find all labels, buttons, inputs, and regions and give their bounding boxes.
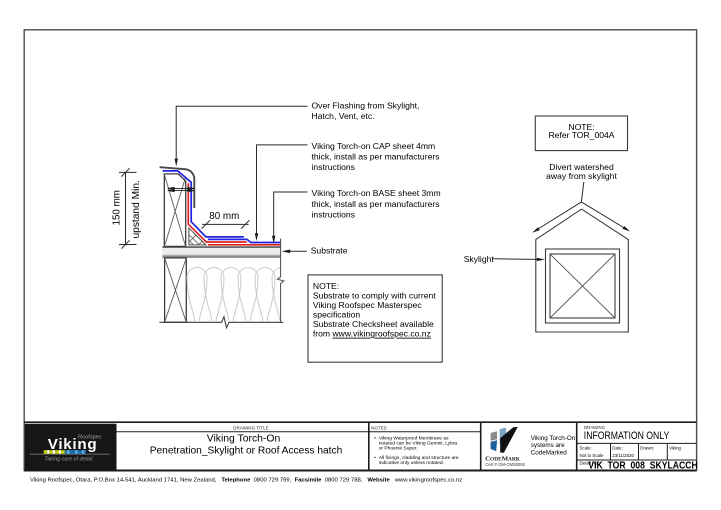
svg-text:Drawn:: Drawn: (640, 446, 654, 451)
svg-text:systems are: systems are (531, 442, 565, 449)
svg-text:Viking: Viking (669, 446, 681, 451)
svg-text:Cert # GM-CM30092: Cert # GM-CM30092 (485, 462, 525, 467)
svg-text:23/11/2020: 23/11/2020 (612, 453, 634, 458)
svg-text:•: • (374, 456, 376, 461)
svg-text:Substrate to comply with curre: Substrate to comply with current (313, 291, 436, 301)
svg-text:or Phoenix Super.: or Phoenix Super. (379, 445, 418, 451)
svg-text:Viking Roofspec, Otara, P.O.Bo: Viking Roofspec, Otara, P.O.Box 14-541, … (30, 477, 462, 483)
svg-text:CodeMarked: CodeMarked (531, 449, 568, 456)
svg-text:DRAWING TITLE: DRAWING TITLE (233, 425, 269, 430)
svg-text:specification: specification (313, 310, 361, 320)
svg-text:thick, install as per manufact: thick, install as per manufacturers (312, 152, 440, 162)
svg-text:Date:: Date: (612, 446, 623, 451)
svg-text:Skylight: Skylight (464, 254, 495, 264)
svg-text:Viking Roofspec Masterspec: Viking Roofspec Masterspec (313, 300, 422, 310)
svg-text:Hatch, Vent, etc.: Hatch, Vent, etc. (312, 111, 375, 121)
svg-text:80 mm: 80 mm (209, 211, 239, 222)
svg-text:VIK_TOR_008_SKYLACCH: VIK_TOR_008_SKYLACCH (588, 460, 698, 471)
svg-text:Not to Scale: Not to Scale (580, 453, 604, 458)
svg-text:Viking Torch-on BASE sheet 3mm: Viking Torch-on BASE sheet 3mm (312, 188, 441, 198)
svg-text:Over Flashing from Skylight,: Over Flashing from Skylight, (312, 100, 420, 110)
svg-text:instructions: instructions (312, 209, 355, 219)
svg-text:Refer TOR_004A: Refer TOR_004A (548, 130, 614, 140)
svg-text:instructions: instructions (312, 162, 355, 172)
svg-text:Substrate Checksheet available: Substrate Checksheet available (313, 319, 434, 329)
svg-text:Taking care of detail: Taking care of detail (44, 456, 93, 462)
svg-text:from www.vikingroofspec.co.nz: from www.vikingroofspec.co.nz (313, 329, 431, 339)
svg-text:INFORMATION ONLY: INFORMATION ONLY (584, 430, 670, 442)
svg-text:150 mm: 150 mm (112, 190, 123, 225)
svg-text:upstand Min.: upstand Min. (131, 180, 142, 238)
svg-text:•: • (374, 437, 376, 442)
svg-text:Penetration_Skylight or Roof A: Penetration_Skylight or Roof Access hatc… (150, 445, 343, 456)
svg-text:Substrate: Substrate (311, 246, 348, 256)
svg-text:away from skylight: away from skylight (546, 171, 617, 181)
svg-text:Viking Torch-On: Viking Torch-On (531, 435, 576, 442)
svg-text:Scale:: Scale: (580, 446, 592, 451)
svg-text:NOTES:: NOTES: (371, 426, 387, 431)
svg-text:Viking Torch-On: Viking Torch-On (207, 434, 281, 445)
svg-text:Viking Torch-on CAP sheet 4mm: Viking Torch-on CAP sheet 4mm (312, 141, 436, 151)
svg-text:indicative only unless notated: indicative only unless notated. (379, 460, 444, 466)
svg-text:thick, install as per manufact: thick, install as per manufacturers (312, 199, 440, 209)
svg-text:NOTE:: NOTE: (313, 281, 339, 291)
